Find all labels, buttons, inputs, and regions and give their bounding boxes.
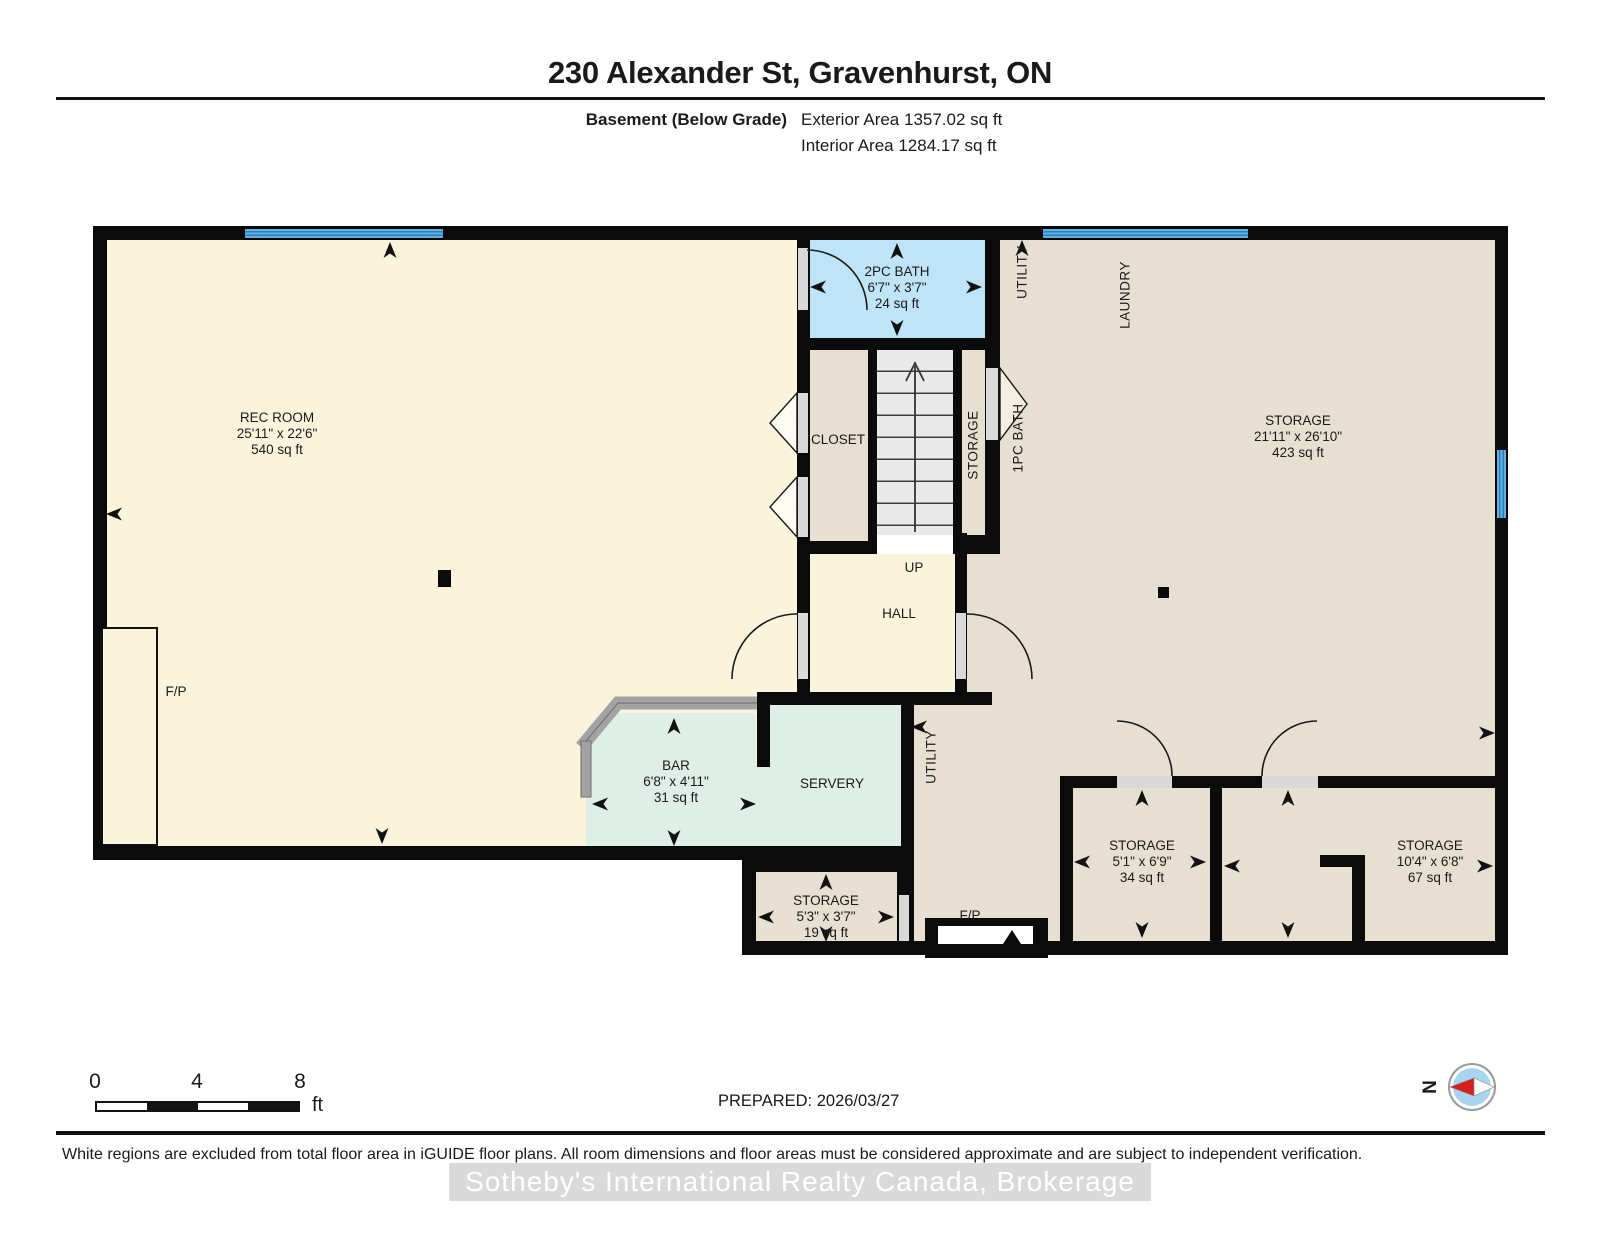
scale-tick-8: 8 <box>294 1070 306 1094</box>
disclaimer-text: White regions are excluded from total fl… <box>62 1146 1362 1164</box>
room-label-1pc-bath: 1PC BATH <box>1011 403 1026 472</box>
scale-unit: ft <box>312 1094 323 1117</box>
fireplace-icon <box>925 918 1048 958</box>
compass-icon <box>1446 1061 1498 1113</box>
room-label-laundry: LAUNDRY <box>1118 261 1133 329</box>
room-label-storage-main: STORAGE 21'11" x 26'10" 423 sq ft <box>1254 413 1342 461</box>
plan-decoration-layer <box>0 0 1600 1237</box>
brokerage-watermark: Sotheby's International Realty Canada, B… <box>449 1163 1151 1201</box>
door-arcs <box>732 250 1317 776</box>
bifold-door-icon <box>770 477 797 537</box>
room-label-storage-mid: STORAGE 5'1" x 6'9" 34 sq ft <box>1109 838 1175 886</box>
bifold-door-icon <box>770 393 797 453</box>
prepared-date: PREPARED: 2026/03/27 <box>718 1092 899 1111</box>
label-stairs-up: UP <box>905 560 924 576</box>
compass-north-label: N <box>1420 1080 1442 1094</box>
room-label-rec-room: REC ROOM 25'11" x 22'6" 540 sq ft <box>237 410 318 458</box>
stairs-up-arrow-icon <box>906 363 924 532</box>
room-label-hall: HALL <box>882 606 916 622</box>
room-label-stair-storage: STORAGE <box>966 410 981 479</box>
room-label-storage-small: STORAGE 5'3" x 3'7" 19 sq ft <box>793 893 859 941</box>
scale-tick-0: 0 <box>89 1070 101 1094</box>
support-posts <box>438 570 1169 598</box>
floor-plan-page: 230 Alexander St, Gravenhurst, ON Baseme… <box>0 0 1600 1237</box>
room-label-servery: SERVERY <box>800 776 864 792</box>
room-label-utility-upper: UTILITY <box>1015 245 1030 299</box>
scale-tick-4: 4 <box>191 1070 203 1094</box>
room-label-bar: BAR 6'8" x 4'11" 31 sq ft <box>643 758 709 806</box>
room-label-2pc-bath: 2PC BATH 6'7" x 3'7" 24 sq ft <box>864 264 929 312</box>
room-label-fireplace-left: F/P <box>165 684 186 700</box>
scale-bar <box>95 1101 300 1112</box>
room-label-utility-lower: UTILITY <box>924 730 939 784</box>
footer-divider <box>56 1131 1545 1135</box>
dimension-arrows <box>106 240 1495 942</box>
room-label-storage-right: STORAGE 10'4" x 6'8" 67 sq ft <box>1397 838 1464 886</box>
room-label-closet: CLOSET <box>811 432 865 448</box>
room-label-fireplace-lower: F/P <box>959 908 980 924</box>
